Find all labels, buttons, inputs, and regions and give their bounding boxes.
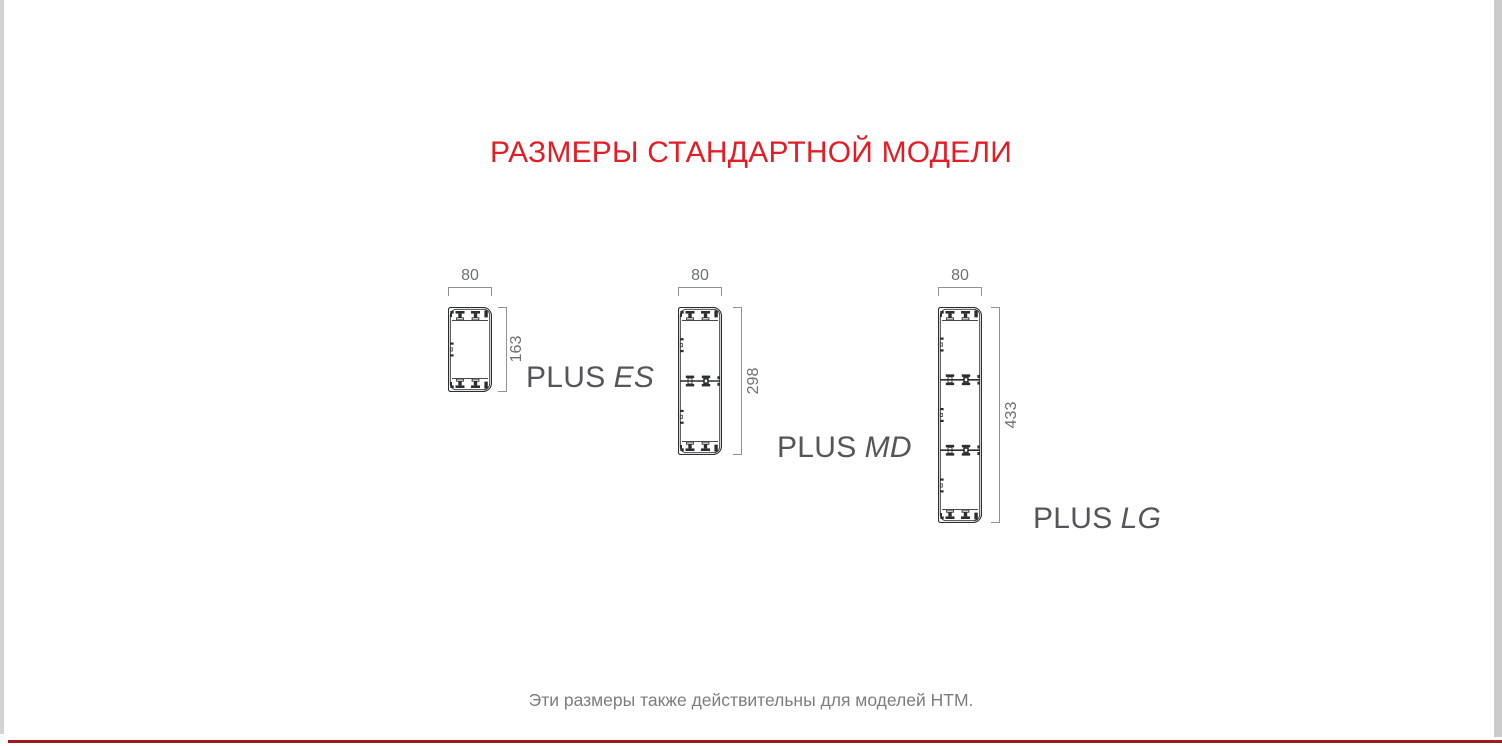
width-dimension-line <box>678 287 722 296</box>
figure-model: LG <box>1121 502 1162 535</box>
figure-series: PLUS <box>777 431 857 464</box>
figure-series: PLUS <box>526 361 606 394</box>
page: РАЗМЕРЫ СТАНДАРТНОЙ МОДЕЛИ 80 163 PLUSES… <box>0 0 1502 746</box>
profile-cross-section-lg <box>938 307 982 523</box>
page-edge-left <box>0 0 4 734</box>
page-title: РАЗМЕРЫ СТАНДАРТНОЙ МОДЕЛИ <box>0 136 1502 170</box>
height-dimension-value: 433 <box>1003 402 1021 429</box>
height-dimension-line <box>498 307 507 392</box>
width-dimension-line <box>938 287 982 296</box>
height-dimension-line <box>991 307 1000 523</box>
figure-label: PLUSLG <box>1033 501 1161 537</box>
figure-label: PLUSES <box>526 360 654 396</box>
height-dimension-line <box>733 307 742 455</box>
figure-series: PLUS <box>1033 502 1113 535</box>
height-dimension-value: 163 <box>508 336 526 363</box>
figure-model: MD <box>865 431 912 464</box>
page-edge-right <box>1494 0 1502 737</box>
footnote-text: Эти размеры также действительны для моде… <box>0 690 1502 711</box>
bottom-divider-rule <box>8 740 1502 743</box>
width-dimension-line <box>448 287 492 296</box>
figure-plus-es: 80 163 PLUSES <box>448 307 492 392</box>
figure-label: PLUSMD <box>777 430 912 466</box>
width-dimension-value: 80 <box>678 266 722 285</box>
width-dimension-value: 80 <box>938 266 982 285</box>
figure-plus-lg: 80 433 PLUSLG <box>938 307 982 523</box>
figure-model: ES <box>614 361 655 394</box>
width-dimension-value: 80 <box>448 266 492 285</box>
profile-cross-section-es <box>448 307 492 392</box>
height-dimension-value: 298 <box>745 368 763 395</box>
figure-plus-md: 80 298 PLUSMD <box>678 307 722 455</box>
profile-cross-section-md <box>678 307 722 455</box>
